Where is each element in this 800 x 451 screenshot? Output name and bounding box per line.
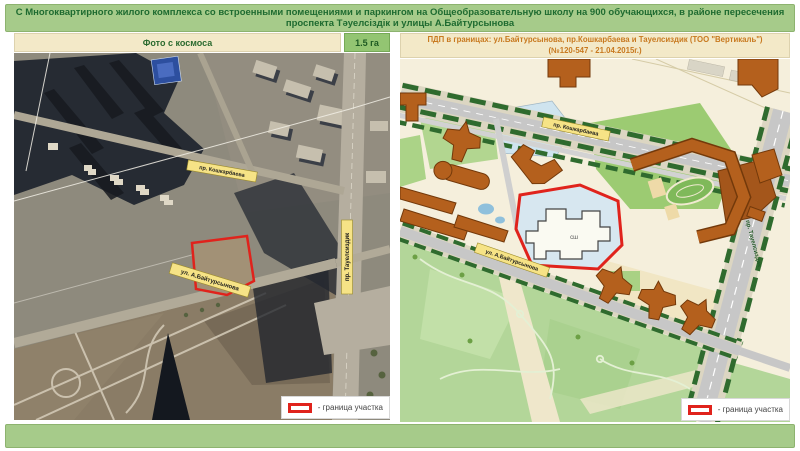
satellite-map: пр. Кошкарбаева ул. А.Байтурсынова пр. Т… (14, 53, 390, 420)
area-badge: 1.5 га (344, 33, 390, 52)
school-label: сш (570, 235, 578, 241)
area-badge-label: 1.5 га (355, 38, 379, 48)
pond (478, 204, 494, 215)
legend-right-label: - граница участка (718, 405, 783, 414)
plan-map-box: сш пр. Кошкарбаева ул. А.Байтурсынова пр… (400, 59, 790, 422)
title-line-1: С Многоквартирного жилого комплекса со в… (6, 7, 794, 19)
satellite-map-box: пр. Кошкарбаева ул. А.Байтурсынова пр. Т… (14, 53, 390, 420)
satellite-header: Фото с космоса (14, 33, 341, 52)
legend-left-label: - граница участка (318, 403, 383, 412)
street-label-tauelsizdik-left: пр. Тауелсиздик (342, 220, 353, 294)
plan-map: сш пр. Кошкарбаева ул. А.Байтурсынова пр… (400, 59, 790, 422)
satellite-panel: Фото с космоса 1.5 га (14, 33, 390, 420)
slide: С Многоквартирного жилого комплекса со в… (0, 0, 800, 451)
plan-header: ПДП в границах: ул.Байтурсынова, пр.Кошк… (400, 33, 790, 58)
boundary-swatch-icon (688, 405, 712, 415)
title-bar: С Многоквартирного жилого комплекса со в… (5, 4, 795, 32)
satellite-header-label: Фото с космоса (143, 38, 213, 48)
legend-right: - граница участка (681, 398, 790, 421)
site-boundary-right: сш (516, 185, 622, 269)
satellite-header-row: Фото с космоса 1.5 га (14, 33, 390, 52)
svg-text:пр. Тауелсиздик: пр. Тауелсиздик (345, 233, 351, 281)
legend-left: - граница участка (281, 396, 390, 419)
boundary-swatch-icon (288, 403, 312, 413)
blue-roof-building (151, 56, 181, 85)
footer-bar (5, 424, 795, 448)
plan-header-line-2: (№120-547 - 21.04.2015г.) (401, 46, 789, 57)
plan-panel: ПДП в границах: ул.Байтурсынова, пр.Кошк… (400, 33, 790, 422)
plan-header-line-1: ПДП в границах: ул.Байтурсынова, пр.Кошк… (401, 35, 789, 46)
title-line-2: проспекта Тәуелсіздік и улицы А.Байтурсы… (6, 18, 794, 30)
